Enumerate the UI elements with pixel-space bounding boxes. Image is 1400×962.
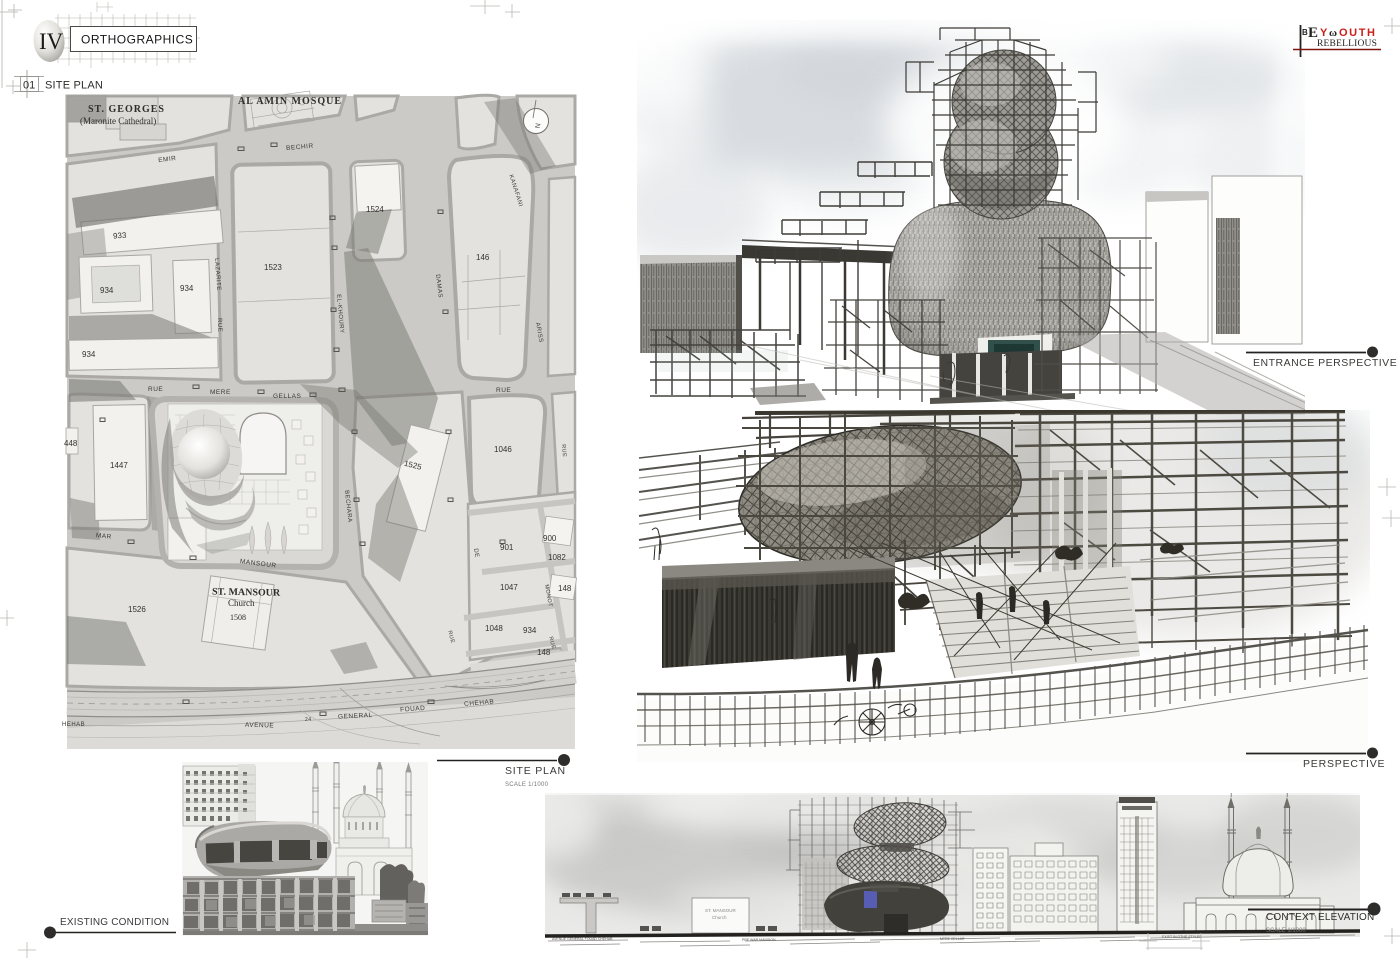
svg-text:PRE WAR MANSION: PRE WAR MANSION <box>742 938 776 942</box>
svg-text:448: 448 <box>64 439 78 448</box>
svg-text:901: 901 <box>500 543 514 552</box>
svg-text:SCALE 1/1000: SCALE 1/1000 <box>1266 928 1306 934</box>
svg-text:IV: IV <box>39 29 64 54</box>
svg-text:1526: 1526 <box>128 605 146 614</box>
svg-text:934: 934 <box>82 350 96 359</box>
svg-text:OUTH: OUTH <box>1339 27 1377 39</box>
svg-text:Church: Church <box>712 915 727 920</box>
svg-text:RUE: RUE <box>216 318 222 332</box>
svg-text:24: 24 <box>305 717 312 723</box>
svg-text:1523: 1523 <box>264 263 282 272</box>
svg-text:ENTRANCE PERSPECTIVE: ENTRANCE PERSPECTIVE <box>1253 357 1397 369</box>
svg-text:PERSPECTIVE: PERSPECTIVE <box>1303 758 1385 770</box>
svg-text:REBELLIOUS: REBELLIOUS <box>1317 39 1377 49</box>
svg-text:(Maronite Cathedral): (Maronite Cathedral) <box>80 116 156 126</box>
svg-text:AVENUE GENERAL FOUAD CHEHAB: AVENUE GENERAL FOUAD CHEHAB <box>552 937 613 941</box>
svg-text:ST. MANSOUR: ST. MANSOUR <box>212 587 281 599</box>
svg-text:01: 01 <box>23 80 35 92</box>
svg-text:RUE: RUE <box>496 387 511 394</box>
svg-text:1048: 1048 <box>485 624 503 633</box>
svg-text:AVENUE: AVENUE <box>245 722 275 730</box>
svg-text:CONTEXT ELEVATION: CONTEXT ELEVATION <box>1266 912 1374 923</box>
svg-text:933: 933 <box>113 231 127 241</box>
svg-text:1447: 1447 <box>110 461 128 470</box>
svg-text:1508: 1508 <box>230 613 246 622</box>
svg-text:GELLAS: GELLAS <box>273 393 301 400</box>
svg-text:RUE: RUE <box>148 386 163 393</box>
svg-text:RUE: RUE <box>560 444 567 458</box>
svg-text:146: 146 <box>476 253 490 262</box>
svg-text:ORTHOGRAPHICS: ORTHOGRAPHICS <box>81 33 193 47</box>
svg-text:ST. GEORGES: ST. GEORGES <box>88 104 165 115</box>
svg-text:MTRE CELLAR: MTRE CELLAR <box>940 937 965 941</box>
svg-text:1082: 1082 <box>548 553 566 562</box>
svg-text:HEHAB: HEHAB <box>62 722 85 728</box>
svg-text:SITE PLAN: SITE PLAN <box>45 80 103 92</box>
svg-text:ω: ω <box>1329 27 1337 39</box>
svg-text:1524: 1524 <box>366 205 384 214</box>
svg-text:900: 900 <box>543 534 557 543</box>
svg-text:ST. MANSOUR: ST. MANSOUR <box>705 908 737 913</box>
svg-text:1047: 1047 <box>500 583 518 592</box>
svg-text:934: 934 <box>523 626 537 635</box>
svg-text:148: 148 <box>558 584 572 593</box>
svg-text:934: 934 <box>180 284 194 293</box>
svg-text:934: 934 <box>100 286 114 295</box>
svg-text:EXISTING CONDITION: EXISTING CONDITION <box>60 917 169 928</box>
svg-text:MERE: MERE <box>210 389 231 396</box>
svg-text:Y: Y <box>1320 27 1328 39</box>
svg-text:AL AMIN MOSQUE: AL AMIN MOSQUE <box>238 96 342 107</box>
svg-text:1046: 1046 <box>494 445 512 454</box>
svg-text:SCALE 1/1000: SCALE 1/1000 <box>505 782 549 788</box>
svg-text:148: 148 <box>537 648 551 657</box>
svg-text:Church: Church <box>228 598 255 608</box>
svg-text:SITE PLAN: SITE PLAN <box>505 765 566 777</box>
